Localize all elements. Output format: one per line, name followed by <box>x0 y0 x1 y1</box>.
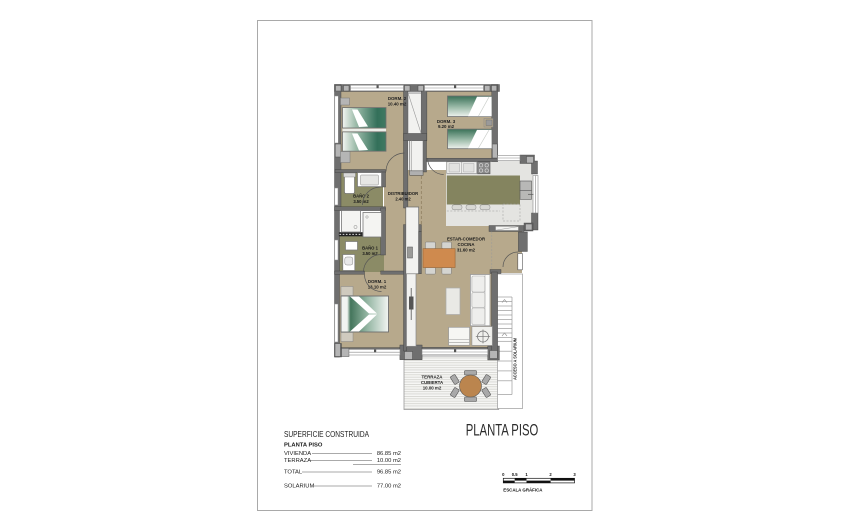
svg-text:BAÑO 2: BAÑO 2 <box>353 194 369 199</box>
svg-text:10.40 m2: 10.40 m2 <box>388 102 407 107</box>
svg-text:SOLARIUM: SOLARIUM <box>284 484 314 490</box>
svg-text:10.00 m2: 10.00 m2 <box>423 386 442 391</box>
svg-text:0.5: 0.5 <box>512 472 518 477</box>
svg-text:PLANTA PISO: PLANTA PISO <box>284 443 323 449</box>
svg-text:BAÑO 1: BAÑO 1 <box>362 246 378 251</box>
svg-text:ESCALA GRÁFICA: ESCALA GRÁFICA <box>503 488 543 493</box>
svg-text:COCINA: COCINA <box>458 242 475 247</box>
svg-text:DORM. 1: DORM. 1 <box>368 279 387 284</box>
svg-text:10.00 m2: 10.00 m2 <box>377 458 401 464</box>
svg-text:SUPERFICIE CONSTRUIDA: SUPERFICIE CONSTRUIDA <box>284 429 369 439</box>
svg-text:TERRAZA: TERRAZA <box>284 458 311 464</box>
svg-text:CUBIERTA: CUBIERTA <box>421 380 444 385</box>
svg-text:2.40 m2: 2.40 m2 <box>395 197 411 202</box>
svg-text:77.00 m2: 77.00 m2 <box>377 484 401 490</box>
svg-text:13.10 m2: 13.10 m2 <box>368 285 387 290</box>
svg-text:DORM. 2: DORM. 2 <box>388 96 407 101</box>
svg-text:9.20 m2: 9.20 m2 <box>438 124 455 129</box>
svg-text:TERRAZA: TERRAZA <box>422 375 444 380</box>
svg-text:TOTAL: TOTAL <box>284 470 303 476</box>
svg-text:ACCESO A SOLARIUM: ACCESO A SOLARIUM <box>512 338 517 380</box>
svg-text:DISTRIBUIDOR: DISTRIBUIDOR <box>388 191 418 196</box>
svg-text:96.85 m2: 96.85 m2 <box>377 470 401 476</box>
svg-text:3.50 m2: 3.50 m2 <box>353 199 369 204</box>
svg-text:ESTAR-COMEDOR: ESTAR-COMEDOR <box>447 237 486 242</box>
svg-text:PLANTA PISO: PLANTA PISO <box>466 421 539 440</box>
svg-text:86.85 m2: 86.85 m2 <box>377 451 401 457</box>
svg-text:31.60 m2: 31.60 m2 <box>457 248 476 253</box>
svg-text:VIVIENDA: VIVIENDA <box>284 451 311 457</box>
